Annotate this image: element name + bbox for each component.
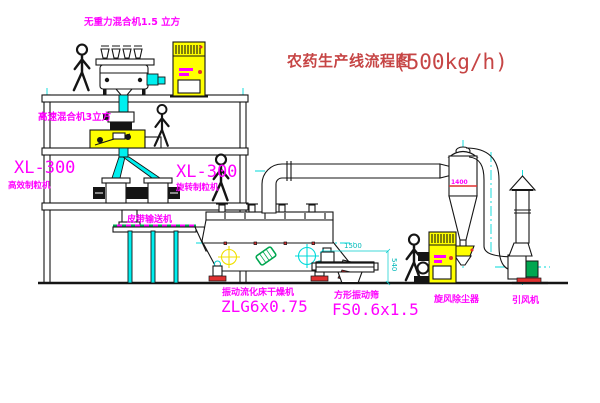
drawing-capacity: (500kg/h): [394, 50, 508, 74]
control-cabinet-cyclone: [429, 232, 456, 283]
dryer-model-label: ZLG6x0.75: [221, 297, 308, 316]
gravity-mixer-label: 无重力混合机1.5 立方: [83, 16, 181, 28]
exhaust-stack: [516, 190, 529, 243]
conveyor-leg: [151, 231, 155, 283]
cad-drawing-viewport: 1400 1500: [0, 0, 600, 403]
process-flow-diagram: 1400 1500: [0, 0, 600, 403]
high-speed-mixer-label: 高速混合机3立方: [38, 111, 112, 123]
cyclone-label: 旋风除尘器: [433, 293, 480, 305]
conveyor-leg: [128, 231, 132, 283]
granulator-left-name: 高效制粒机: [8, 180, 51, 191]
slab-roof: [42, 95, 248, 102]
belt-conveyor-label: 皮带输送机: [126, 213, 172, 225]
feed-pipe: [119, 95, 128, 112]
granulator-left-model: XL-300: [14, 158, 75, 178]
mixer-discharge-pipe: [147, 74, 158, 85]
drawing-title: 农药生产线流程图: [286, 52, 411, 70]
sieve-model-label: FS0.6x1.5: [332, 300, 419, 319]
fan-label: 引风机: [512, 294, 539, 306]
slab-floor2: [42, 148, 248, 155]
sieve-length-dim: 1500: [344, 242, 362, 250]
control-cabinet-roof: [170, 42, 208, 97]
sieve-height-dim: 540: [390, 258, 398, 271]
granulator-right-name: 旋转制粒机: [175, 182, 219, 193]
granulator-right-model: XL-300: [176, 162, 237, 182]
conveyor-leg: [174, 231, 178, 283]
cyclone-dim-label: 1400: [451, 179, 468, 186]
